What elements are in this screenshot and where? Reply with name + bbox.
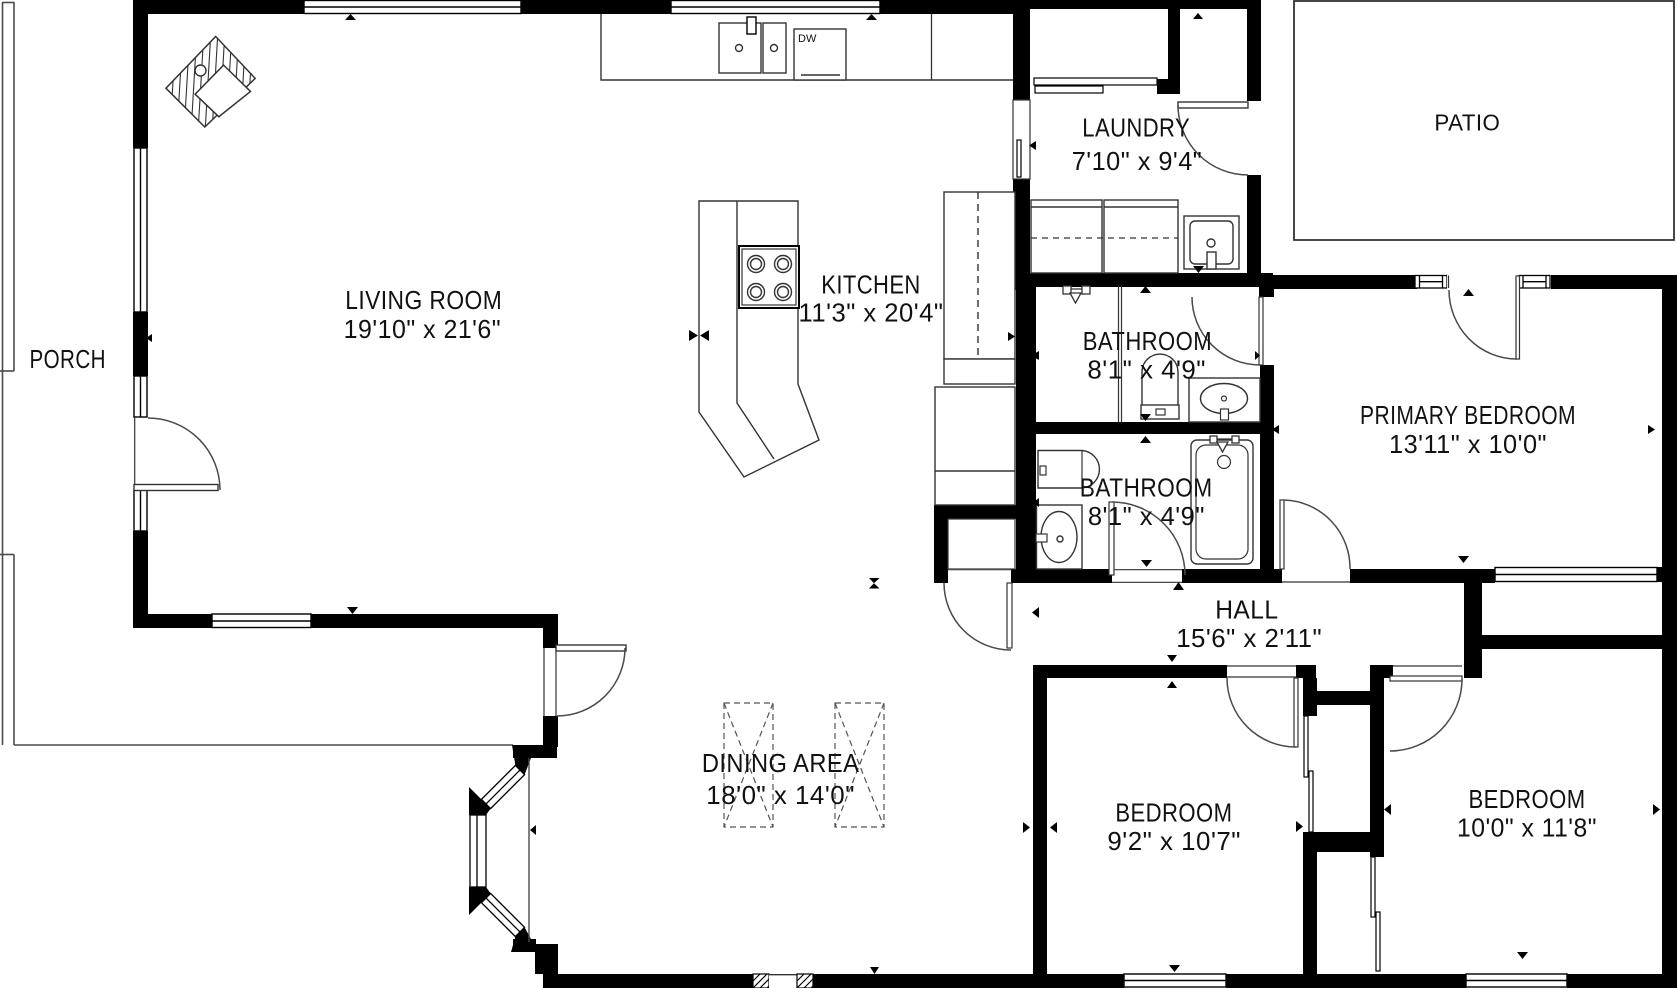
svg-text:KITCHEN: KITCHEN xyxy=(821,270,920,300)
svg-text:DW: DW xyxy=(798,33,817,45)
svg-text:BATHROOM: BATHROOM xyxy=(1083,326,1212,356)
svg-text:10'0" x 11'8": 10'0" x 11'8" xyxy=(1457,813,1597,843)
svg-text:HALL: HALL xyxy=(1215,594,1278,624)
svg-text:PORCH: PORCH xyxy=(29,344,105,374)
svg-text:11'3" x 20'4": 11'3" x 20'4" xyxy=(799,298,944,328)
svg-text:PRIMARY BEDROOM: PRIMARY BEDROOM xyxy=(1360,400,1576,430)
svg-text:PATIO: PATIO xyxy=(1434,110,1500,136)
svg-text:15'6" x 2'11": 15'6" x 2'11" xyxy=(1176,623,1322,653)
svg-text:13'11" x 10'0": 13'11" x 10'0" xyxy=(1389,429,1547,459)
svg-text:LAUNDRY: LAUNDRY xyxy=(1082,113,1190,143)
svg-text:19'10" x 21'6": 19'10" x 21'6" xyxy=(344,314,502,344)
svg-text:8'1" x 4'9": 8'1" x 4'9" xyxy=(1087,354,1206,384)
svg-text:DINING AREA: DINING AREA xyxy=(702,748,860,778)
svg-text:BATHROOM: BATHROOM xyxy=(1080,472,1213,502)
svg-text:LIVING ROOM: LIVING ROOM xyxy=(345,285,502,315)
svg-text:9'2" x 10'7": 9'2" x 10'7" xyxy=(1107,826,1241,856)
svg-text:7'10" x 9'4": 7'10" x 9'4" xyxy=(1072,146,1203,176)
svg-text:BEDROOM: BEDROOM xyxy=(1115,798,1232,828)
svg-text:BEDROOM: BEDROOM xyxy=(1469,784,1586,814)
svg-text:18'0" x 14'0": 18'0" x 14'0" xyxy=(706,780,855,810)
svg-text:8'1" x 4'9": 8'1" x 4'9" xyxy=(1088,501,1205,531)
